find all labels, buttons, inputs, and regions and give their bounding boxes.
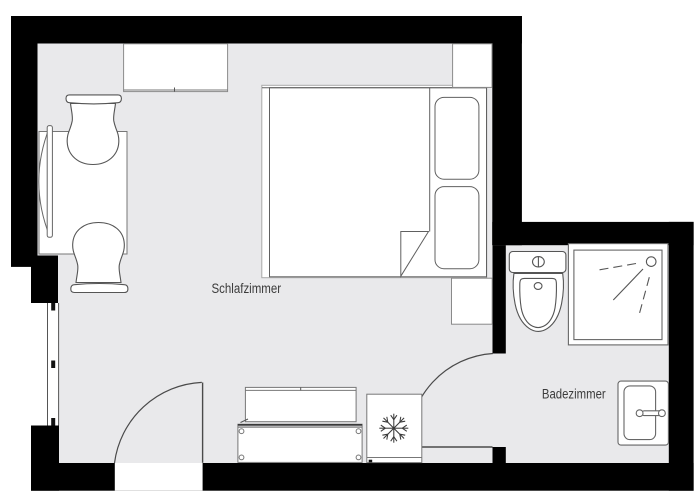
svg-text:Schlafzimmer: Schlafzimmer: [212, 281, 282, 296]
svg-text:Badezimmer: Badezimmer: [542, 387, 606, 402]
